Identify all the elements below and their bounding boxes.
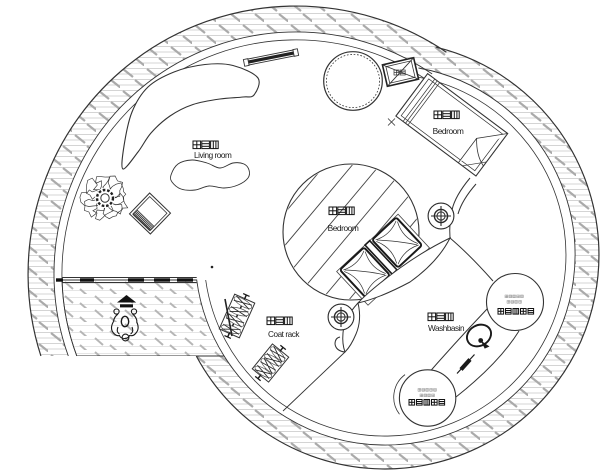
svg-text:Washbasin: Washbasin xyxy=(428,324,465,333)
svg-text:Bedroom: Bedroom xyxy=(433,126,464,136)
svg-text:Living room: Living room xyxy=(194,151,232,160)
svg-text:Bedroom: Bedroom xyxy=(328,223,359,233)
svg-text:Coat rack: Coat rack xyxy=(268,330,300,339)
